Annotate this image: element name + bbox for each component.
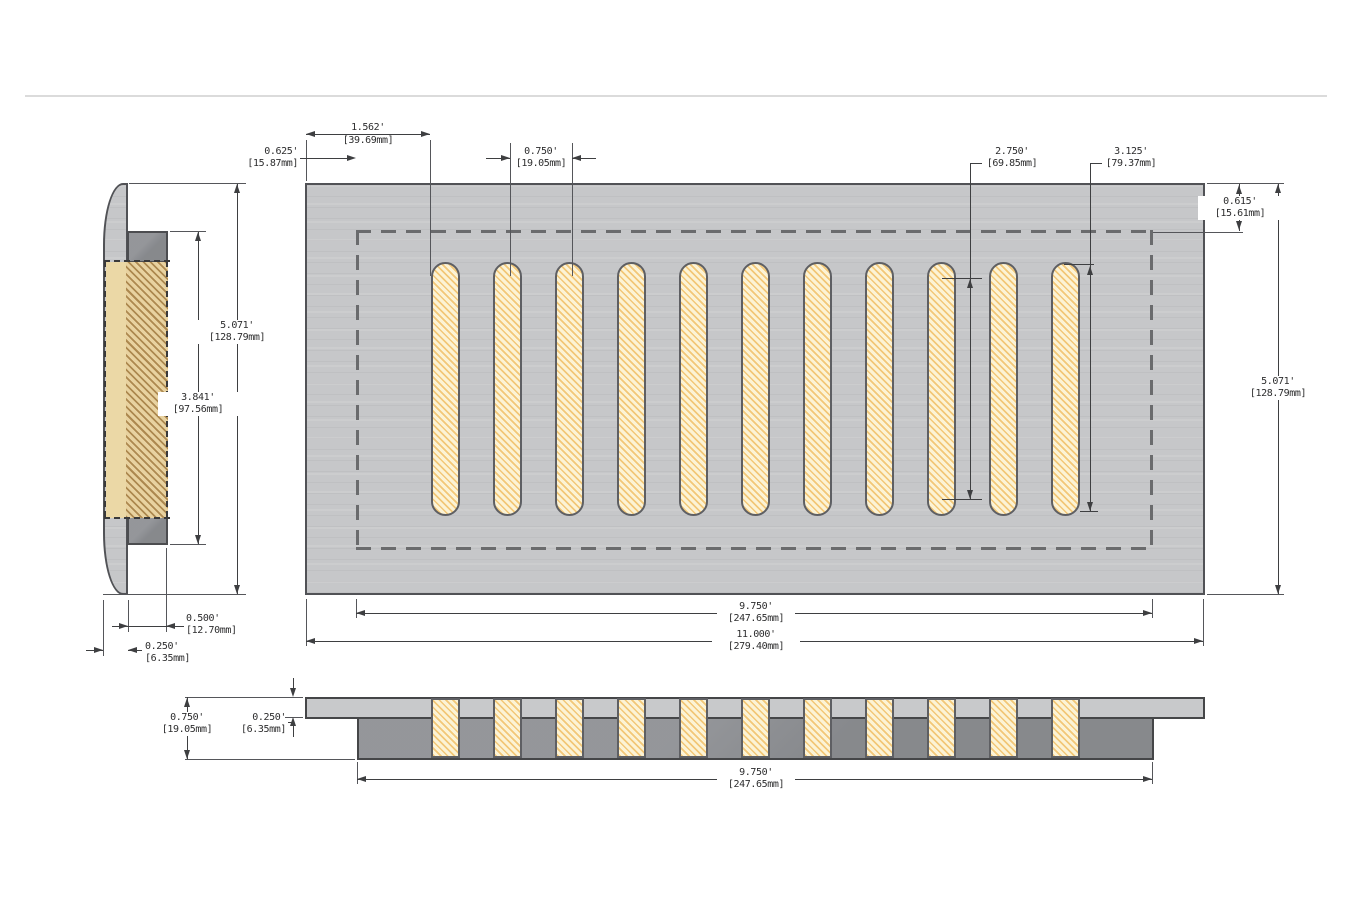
plan-slot <box>865 262 894 516</box>
leader-line <box>288 722 294 723</box>
arrowhead <box>1236 221 1242 230</box>
extension-line <box>430 140 431 276</box>
arrowhead <box>967 490 973 499</box>
extension-line <box>1207 594 1284 595</box>
duct-opening-hidden-line <box>356 547 1153 550</box>
dimension-line <box>300 158 352 159</box>
section-slot-bar <box>679 698 708 758</box>
dim-opening-width-label: 9.750' [247.65mm] <box>696 601 816 625</box>
dim-section-opening-width-label: 9.750' [247.65mm] <box>696 767 816 791</box>
plan-slot <box>927 262 956 516</box>
arrowhead <box>347 155 356 161</box>
dim-overall-width-label: 11.000' [279.40mm] <box>696 629 816 653</box>
arrowhead <box>119 623 128 629</box>
side-view-damper-flat <box>106 262 126 518</box>
arrowhead <box>1275 184 1281 193</box>
arrowhead <box>195 232 201 241</box>
dim-section-height-label: 0.750' [19.05mm] <box>147 712 227 736</box>
arrowhead <box>184 698 190 707</box>
hidden-line <box>104 517 170 519</box>
arrowhead <box>234 585 240 594</box>
dim-slot-pitch-label: 0.750' [19.05mm] <box>501 146 581 170</box>
plan-slot <box>493 262 522 516</box>
plan-slot <box>1051 262 1080 516</box>
plan-slot <box>741 262 770 516</box>
dimension-line <box>800 641 1203 642</box>
section-slot-bar <box>555 698 584 758</box>
arrowhead <box>94 647 103 653</box>
arrowhead <box>306 638 315 644</box>
section-slot-bar <box>803 698 832 758</box>
dimension-line <box>293 726 294 737</box>
dim-drop-depth-label: 0.500' [12.70mm] <box>186 613 256 637</box>
dimension-line <box>970 163 971 500</box>
side-view-frame-bottom <box>127 516 168 545</box>
dimension-line <box>198 232 199 544</box>
extension-line <box>1152 599 1153 618</box>
plan-slot <box>803 262 832 516</box>
dim-flange-depth-label: 0.250' [6.35mm] <box>145 641 215 665</box>
hidden-line <box>166 261 168 518</box>
extension-line <box>185 697 303 698</box>
arrowhead <box>290 688 296 697</box>
extension-line <box>306 140 307 181</box>
dim-slot-inner-length-label: 2.750' [69.85mm] <box>972 146 1052 170</box>
extension-line <box>1203 599 1204 646</box>
tick-line <box>942 278 982 279</box>
arrowhead <box>128 647 137 653</box>
hidden-line <box>104 260 170 262</box>
plan-slot <box>679 262 708 516</box>
extension-line <box>129 183 246 184</box>
dimension-line <box>306 641 712 642</box>
tick-line <box>1080 511 1098 512</box>
extension-line <box>103 600 104 656</box>
dim-slot-length-label: 3.125' [79.37mm] <box>1091 146 1171 170</box>
arrowhead <box>421 131 430 137</box>
tick-line <box>1064 264 1094 265</box>
section-slot-bar <box>493 698 522 758</box>
page-divider <box>25 95 1327 97</box>
arrowhead <box>234 184 240 193</box>
dimension-line <box>795 779 1152 780</box>
plan-slot <box>431 262 460 516</box>
arrowhead <box>1236 185 1242 194</box>
dimension-line <box>237 184 238 594</box>
section-slot-bar <box>431 698 460 758</box>
duct-opening-hidden-line <box>356 230 1153 233</box>
arrowhead <box>166 623 175 629</box>
extension-line <box>170 231 206 232</box>
dim-side-overall-height-label: 5.071' [128.79mm] <box>197 320 277 344</box>
tick-line <box>942 499 982 500</box>
arrowhead <box>356 610 365 616</box>
section-slot-bar <box>989 698 1018 758</box>
dim-margin-left-label: 0.625' [15.87mm] <box>238 146 298 170</box>
duct-opening-hidden-line <box>356 230 359 550</box>
arrowhead <box>1087 266 1093 275</box>
dim-overall-height-label: 5.071' [128.79mm] <box>1234 376 1322 400</box>
arrowhead <box>1194 638 1203 644</box>
dimension-line <box>795 613 1152 614</box>
section-slot-bar <box>865 698 894 758</box>
extension-line <box>170 544 206 545</box>
side-view-frame-top <box>127 231 168 263</box>
dim-margin-top-label: 0.615' [15.61mm] <box>1198 196 1282 220</box>
extension-line <box>185 759 355 760</box>
arrowhead <box>967 279 973 288</box>
section-slot-bar <box>927 698 956 758</box>
dim-section-plate-thickness-label: 0.250' [6.35mm] <box>226 712 286 736</box>
hidden-line <box>104 261 106 518</box>
plan-slot <box>617 262 646 516</box>
section-slot-bar <box>617 698 646 758</box>
side-view-damper-hatched <box>126 262 168 518</box>
extension-line <box>103 594 246 595</box>
extension-line <box>1207 183 1284 184</box>
arrowhead <box>357 776 366 782</box>
dim-slot-offset-label: 1.562' [39.69mm] <box>328 122 408 147</box>
arrowhead <box>1087 502 1093 511</box>
dim-side-opening-height-label: 3.841' [97.56mm] <box>158 392 238 416</box>
extension-line <box>166 548 167 632</box>
extension-line <box>1152 762 1153 784</box>
plan-slot <box>555 262 584 516</box>
arrowhead <box>1143 610 1152 616</box>
dimension-line <box>357 779 717 780</box>
extension-line <box>128 600 129 632</box>
section-slot-bar <box>1051 698 1080 758</box>
drawing-canvas: 5.071' [128.79mm] 3.841' [97.56mm] 0.500… <box>0 0 1350 900</box>
arrowhead <box>184 750 190 759</box>
arrowhead <box>195 535 201 544</box>
dimension-line <box>1090 163 1091 511</box>
section-slot-bar <box>741 698 770 758</box>
arrowhead <box>306 131 315 137</box>
arrowhead <box>1143 776 1152 782</box>
dimension-line <box>356 613 717 614</box>
extension-line <box>1153 232 1243 233</box>
plan-slot <box>989 262 1018 516</box>
duct-opening-hidden-line <box>1150 230 1153 550</box>
arrowhead <box>1275 585 1281 594</box>
